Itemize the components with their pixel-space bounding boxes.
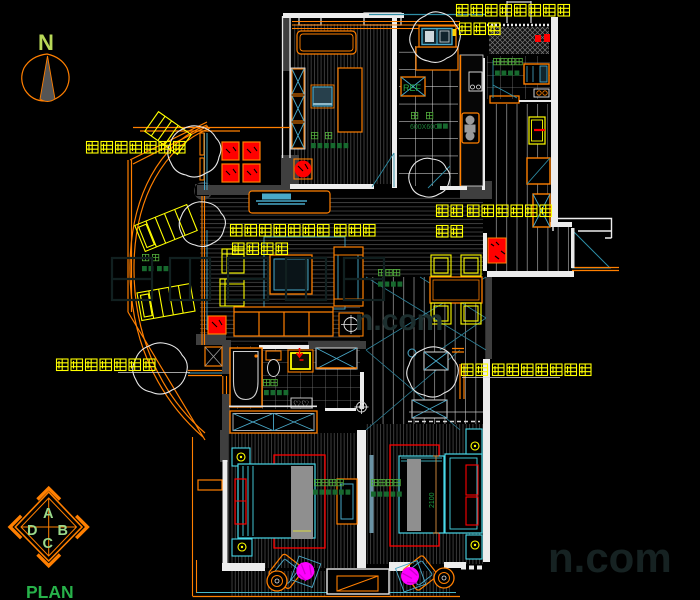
svg-text:B: B	[58, 523, 68, 539]
svg-text:REF: REF	[403, 83, 422, 93]
svg-text:600X600: 600X600	[410, 124, 438, 131]
svg-text:2100: 2100	[429, 492, 436, 508]
svg-text:PLAN: PLAN	[26, 582, 74, 600]
svg-text:N: N	[38, 30, 54, 55]
svg-text:D: D	[27, 523, 37, 539]
svg-text:♡♡: ♡♡	[293, 399, 309, 409]
svg-text:A: A	[43, 506, 54, 522]
svg-text:n.com: n.com	[355, 304, 443, 337]
svg-text:n.com: n.com	[548, 534, 672, 581]
svg-text:C: C	[43, 536, 54, 552]
